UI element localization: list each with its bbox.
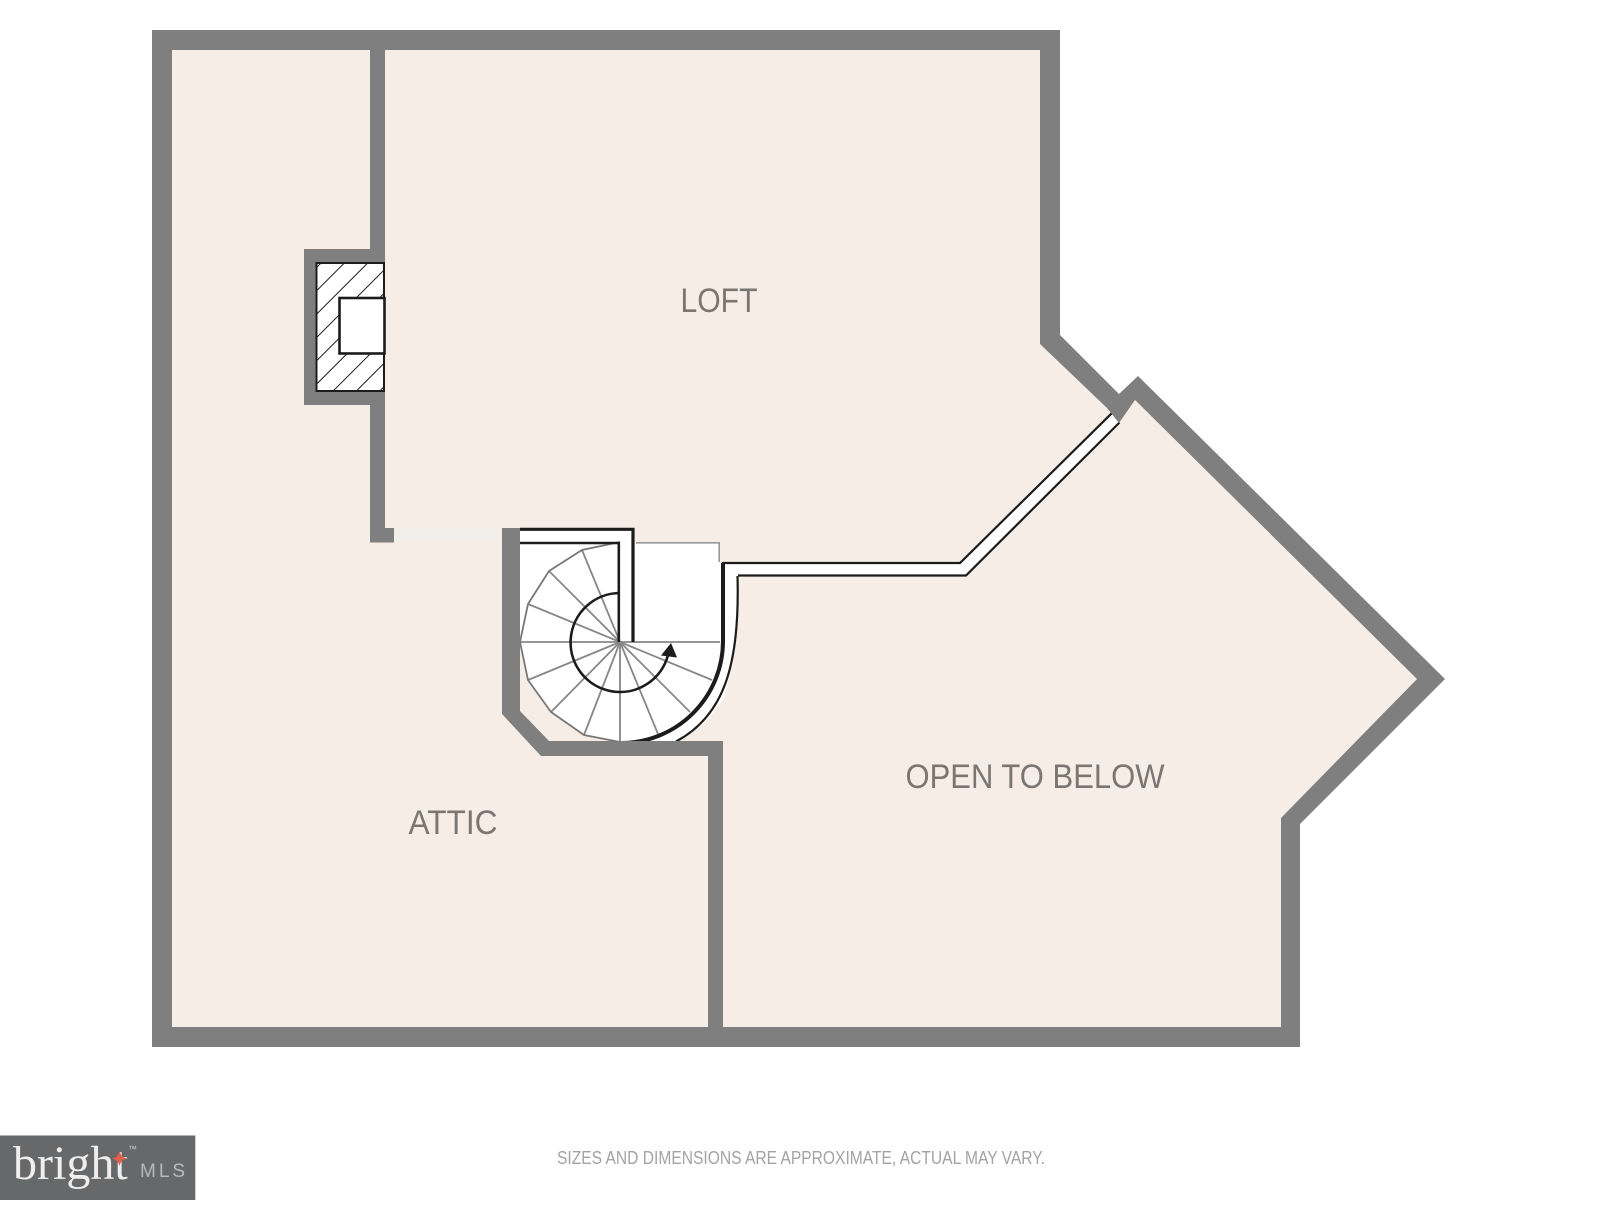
svg-text:OPEN TO BELOW: OPEN TO BELOW — [906, 758, 1165, 796]
svg-text:™: ™ — [128, 1144, 137, 1154]
svg-text:SIZES AND DIMENSIONS ARE APPRO: SIZES AND DIMENSIONS ARE APPROXIMATE, AC… — [557, 1148, 1045, 1168]
svg-text:ATTIC: ATTIC — [409, 804, 498, 842]
svg-text:LOFT: LOFT — [681, 282, 758, 320]
svg-text:bright: bright — [13, 1137, 128, 1190]
svg-text:MLS: MLS — [140, 1161, 188, 1182]
